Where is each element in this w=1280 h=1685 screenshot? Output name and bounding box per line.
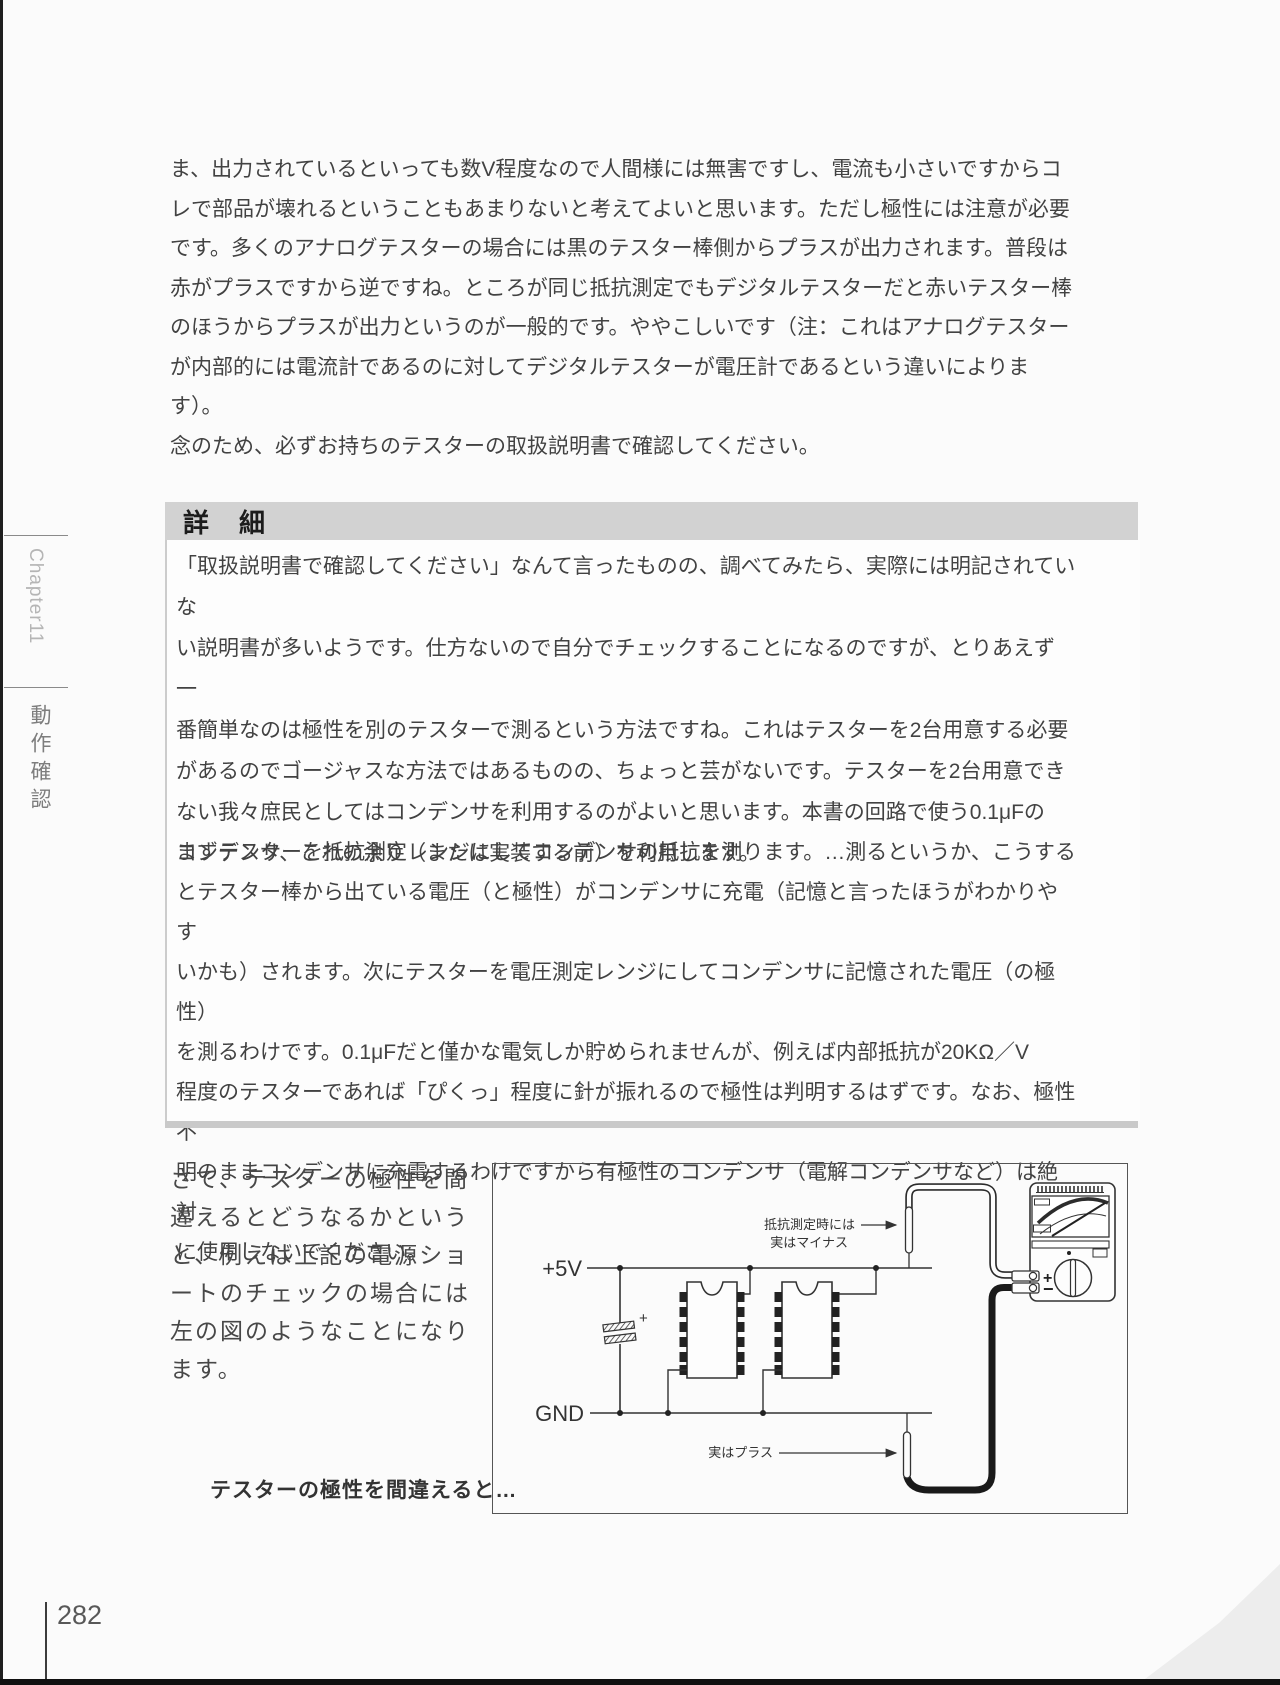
intro-line: ま、出力されているといっても数V程度なので人間様には無害ですし、電流も小さいです…	[170, 150, 1080, 190]
side-line: と、例えば上記の電源ショ	[170, 1236, 470, 1274]
ic-chip-2	[763, 1269, 876, 1412]
mirror-strip	[1032, 1241, 1109, 1248]
page-number: 282	[57, 1600, 102, 1631]
figure-side-text: さて、テスターの極性を間 違えるとどうなるかという と、例えば上記の電源ショ ー…	[170, 1160, 470, 1388]
intro-line: です。多くのアナログテスターの場合には黒のテスター棒側からプラスが出力されます。…	[170, 229, 1080, 269]
detail-line: があるのでゴージャスな方法ではあるものの、ちょっと芸がないです。テスターを2台用…	[176, 751, 1076, 792]
detail-box-bottom-shadow	[165, 1121, 1138, 1128]
page-bottom-edge	[0, 1679, 1280, 1685]
intro-line: のほうからプラスが出力というのが一般的です。ややこしいです（注：これはアナログテ…	[170, 308, 1080, 348]
detail-paragraph-1: 「取扱説明書で確認してください」なんて言ったものの、調べてみたら、実際には明記さ…	[176, 546, 1076, 874]
detail-line: ない我々庶民としてはコンデンサを利用するのがよいと思います。本書の回路で使う0.…	[176, 792, 1076, 833]
side-line: 左の図のようなことになり	[170, 1312, 470, 1350]
black-probe-tip	[904, 1432, 911, 1478]
side-line: ートのチェックの場合には	[170, 1274, 470, 1312]
capacitor-plus-label: +	[639, 1310, 648, 1327]
intro-line: が内部的には電流計であるのに対してデジタルテスターが電圧計であるという違いにより…	[170, 348, 1080, 427]
note-red-line1: 抵抗測定時には	[764, 1217, 855, 1232]
terminal-minus-label: −	[1043, 1279, 1054, 1299]
detail-box-header: 詳 細	[165, 502, 1138, 540]
junction-dots	[617, 1265, 879, 1416]
detail-line: 「取扱説明書で確認してください」なんて言ったものの、調べてみたら、実際には明記さ…	[176, 546, 1076, 628]
figure-caption: テスターの極性を間違えると…	[210, 1474, 517, 1504]
intro-paragraph: ま、出力されているといっても数V程度なので人間様には無害ですし、電流も小さいです…	[170, 150, 1080, 466]
chapter-tab-rule-top	[4, 535, 68, 536]
detail-line: いかも）されます。次にテスターを電圧測定レンジにしてコンデンサに記憶された電圧（…	[176, 953, 1076, 1033]
red-probe-cable	[906, 1187, 1014, 1275]
red-probe-tip	[906, 1207, 913, 1253]
circuit-diagram: +5V GND +	[492, 1163, 1128, 1514]
chapter-tab-label: Chapter11	[24, 548, 46, 688]
detail-line: 程度のテスターであれば「ぴくっ」程度に針が振れるので極性は判明するはずです。なお…	[176, 1073, 1076, 1153]
detail-line: 番簡単なのは極性を別のテスターで測るという方法ですね。これはテスターを2台用意す…	[176, 710, 1076, 751]
side-line: 違えるとどうなるかという	[170, 1198, 470, 1236]
detail-line: い説明書が多いようです。仕方ないので自分でチェックすることになるのですが、とりあ…	[176, 628, 1076, 710]
page-curl-shadow	[1145, 1554, 1280, 1679]
ic-chip-1	[668, 1269, 750, 1412]
intro-line: 念のため、必ずお持ちのテスターの取扱説明書で確認してください。	[170, 427, 1080, 467]
black-probe-cable	[904, 1288, 1014, 1491]
side-line: さて、テスターの極性を間	[170, 1160, 470, 1198]
detail-line: まずテスターを抵抗測定レンジにしてコンデンサの抵抗を測ります。…測るというか、こ…	[176, 833, 1076, 873]
page-binding-edge	[0, 0, 3, 1685]
chapter-section-label: 動作確認	[24, 704, 54, 864]
range-knob	[1055, 1260, 1092, 1297]
chapter-tab-rule-bottom	[4, 687, 68, 688]
detail-line: とテスター棒から出ている電圧（と極性）がコンデンサに充電（記憶と言ったほうがわか…	[176, 873, 1076, 953]
vcc-label: +5V	[542, 1256, 582, 1281]
side-line: ます。	[170, 1350, 470, 1388]
detail-box-title: 詳 細	[183, 503, 267, 540]
circuit-figure: +5V GND +	[492, 1163, 1128, 1514]
intro-line: 赤がプラスですから逆ですね。ところが同じ抵抗測定でもデジタルテスターだと赤いテス…	[170, 269, 1080, 309]
gnd-label: GND	[535, 1401, 584, 1426]
note-black-label: 実はプラス	[708, 1445, 773, 1460]
capacitor: +	[603, 1268, 648, 1413]
detail-line: を測るわけです。0.1μFだと僅かな電気しか貯められませんが、例えば内部抵抗が2…	[176, 1033, 1076, 1073]
intro-line: レで部品が壊れるということもあまりないと考えてよいと思います。ただし極性には注意…	[170, 190, 1080, 230]
note-red-line2: 実はマイナス	[770, 1235, 848, 1250]
page-number-rule	[45, 1602, 47, 1682]
